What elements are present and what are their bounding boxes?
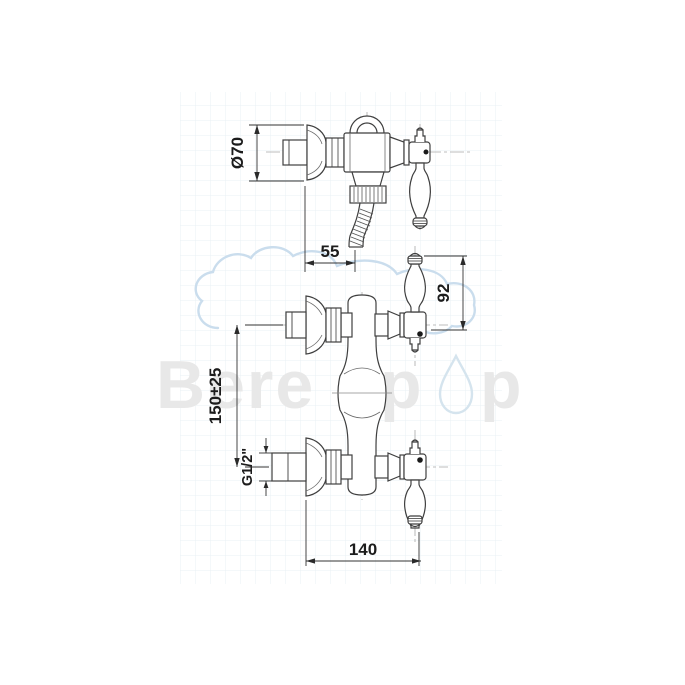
watermark-text-mid: p [380,347,424,423]
dim-label-overall: 140 [349,540,377,559]
hose-outlet [352,172,384,186]
dim-label-depth: 55 [321,242,340,261]
dim-label-handle-height: 92 [434,284,453,303]
wall-nipple-side [283,140,307,165]
hex-nut-front-bottom [326,450,341,484]
cartridge-cone-front-bottom [388,453,400,481]
hub-knob-front-bottom [410,442,420,454]
technical-drawing-canvas: Bere p p [0,0,685,685]
dim-label-diameter: Ø70 [228,137,247,169]
watermark-text-start: Bere [156,347,315,423]
wall-nipple-front-bottom [272,453,306,481]
dim-label-thread: G1/2" [240,448,256,486]
wall-nipple-front-top [286,312,306,338]
valve-body-side [344,133,390,172]
hub-knob-side [415,130,425,142]
hub-knob-front-top [410,338,420,350]
hex-nut-side [326,138,344,167]
lever-tip-cap-side [413,218,427,226]
dim-label-inlet-centers: 150±25 [206,368,225,425]
lever-tip-cap-front-bottom [408,516,422,524]
hex-nut-front-top [326,308,341,342]
handle-hub-front-bottom [404,454,426,480]
watermark-text-end: p [480,347,524,423]
cartridge-cone-side [390,137,404,168]
cartridge-cone-front-top [388,311,400,339]
escutcheon-side [307,125,326,180]
hose-collar-nut [350,186,386,203]
lever-tip-cap-front-top [408,256,422,264]
